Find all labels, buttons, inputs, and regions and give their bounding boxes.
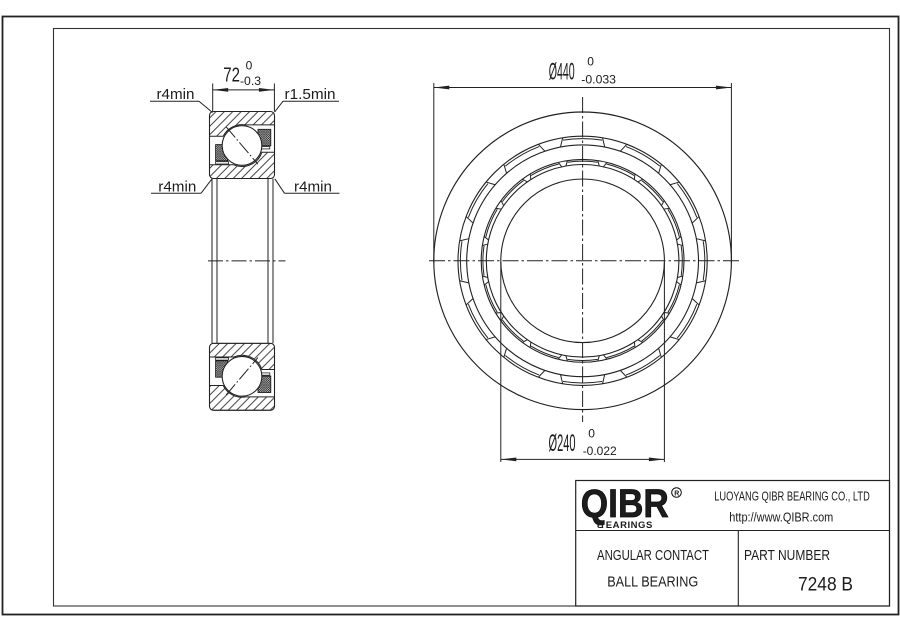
svg-text:PART NUMBER: PART NUMBER [744, 547, 830, 564]
svg-text:BALL BEARING: BALL BEARING [607, 574, 698, 591]
svg-text:0: 0 [588, 427, 595, 441]
svg-text:72: 72 [223, 65, 240, 87]
svg-text:EARINGS: EARINGS [606, 520, 653, 531]
svg-text:R: R [674, 490, 679, 497]
svg-text:Ø440: Ø440 [549, 59, 575, 86]
svg-text:0: 0 [587, 55, 594, 69]
svg-text:-0.022: -0.022 [583, 444, 617, 458]
svg-text:LUOYANG QIBR BEARING CO., LTD: LUOYANG QIBR BEARING CO., LTD [714, 489, 870, 504]
svg-text:0: 0 [246, 58, 253, 72]
svg-text:r4min: r4min [157, 86, 195, 103]
svg-text:Ø240: Ø240 [549, 430, 576, 457]
svg-text:-0.3: -0.3 [240, 74, 261, 88]
svg-text:ANGULAR CONTACT: ANGULAR CONTACT [597, 547, 709, 564]
svg-text:http://www.QIBR.com: http://www.QIBR.com [729, 510, 833, 525]
svg-text:-0.033: -0.033 [581, 73, 616, 87]
svg-text:7248 B: 7248 B [798, 574, 853, 596]
svg-text:r1.5min: r1.5min [285, 86, 336, 103]
svg-text:B: B [597, 520, 604, 531]
